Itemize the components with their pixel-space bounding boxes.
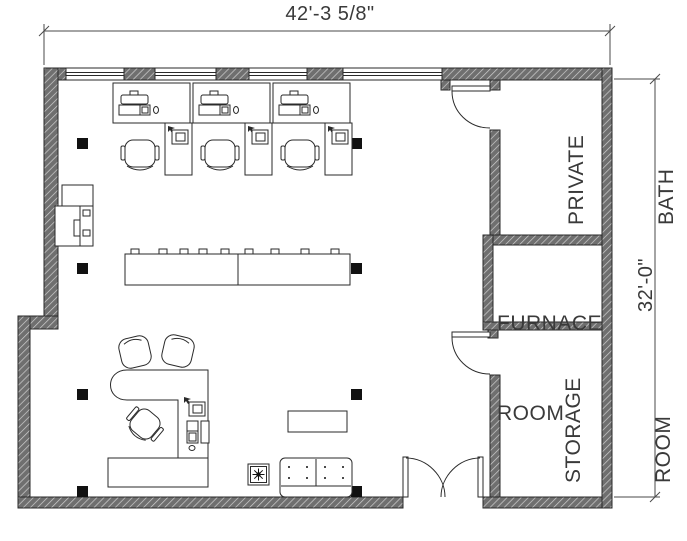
guest-chair-icon — [160, 333, 196, 369]
room-label-storage-room: STORAGE ROOM — [499, 373, 559, 483]
room-label-line: ROOM — [649, 373, 679, 483]
wall-pier — [441, 80, 450, 90]
column-marker — [77, 138, 88, 149]
column-markers — [77, 138, 362, 497]
plant-icon — [248, 464, 269, 485]
room-label-line: STORAGE — [559, 373, 589, 483]
window-glyph — [66, 68, 124, 80]
bath-door-jamb — [490, 80, 500, 90]
mouse-icon — [189, 446, 195, 451]
desk-office-chair-icon — [121, 402, 167, 447]
width-dimension-label: 42'-3 5/8" — [230, 3, 430, 26]
window-glyph — [343, 68, 442, 80]
storage-room-door-swing — [452, 332, 490, 374]
height-dimension-label: 32'-0" — [635, 239, 659, 331]
private-bath-door-swing — [452, 86, 490, 128]
column-marker — [77, 389, 88, 400]
conference-table — [125, 249, 350, 285]
coffee-table — [288, 411, 347, 432]
room-label-line: PRIVATE — [562, 115, 592, 225]
guest-chair-icon — [117, 334, 153, 370]
window-glyphs — [66, 68, 442, 80]
private-bath-wall — [490, 130, 500, 237]
workstation-1 — [113, 83, 192, 175]
column-marker — [351, 138, 362, 149]
sofa-icon — [280, 458, 352, 497]
workstation-3 — [273, 83, 352, 175]
entry-double-door-swing — [403, 457, 483, 497]
column-marker — [351, 486, 362, 497]
room-label-line: BATH — [652, 115, 682, 225]
column-marker — [351, 389, 362, 400]
furnace-room-left-wall — [483, 235, 493, 330]
room-label-private-bath: PRIVATE BATH — [502, 115, 562, 225]
window-glyph — [249, 68, 307, 80]
column-marker — [77, 486, 88, 497]
column-marker — [77, 263, 88, 274]
window-glyph — [155, 68, 216, 80]
width-dimension — [39, 24, 615, 65]
column-marker — [351, 263, 362, 274]
room-label-furnace-room: FURNACE ROOM — [497, 249, 607, 309]
room-label-line: FURNACE — [497, 309, 607, 339]
workstation-2 — [193, 83, 272, 175]
furnace-room-top-wall — [483, 235, 602, 245]
floor-plan-canvas: 42'-3 5/8" 32'-0" PRIVATE BATH FURNACE R… — [0, 0, 687, 541]
printer-copier — [55, 185, 93, 246]
